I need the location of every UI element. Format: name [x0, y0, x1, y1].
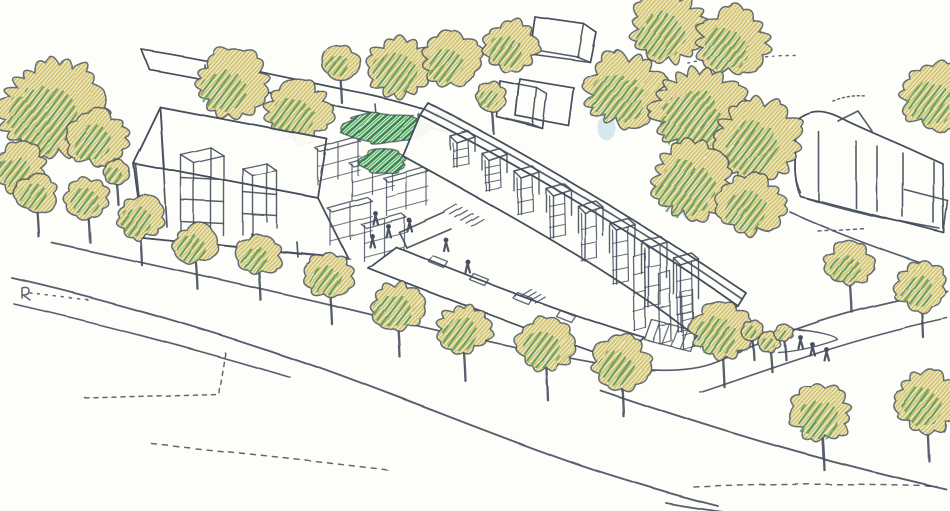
tree-canopy-shading: [325, 55, 348, 76]
sketch-canvas: [0, 0, 950, 511]
ink-line: [297, 242, 298, 257]
architectural-sketch: [0, 0, 950, 511]
